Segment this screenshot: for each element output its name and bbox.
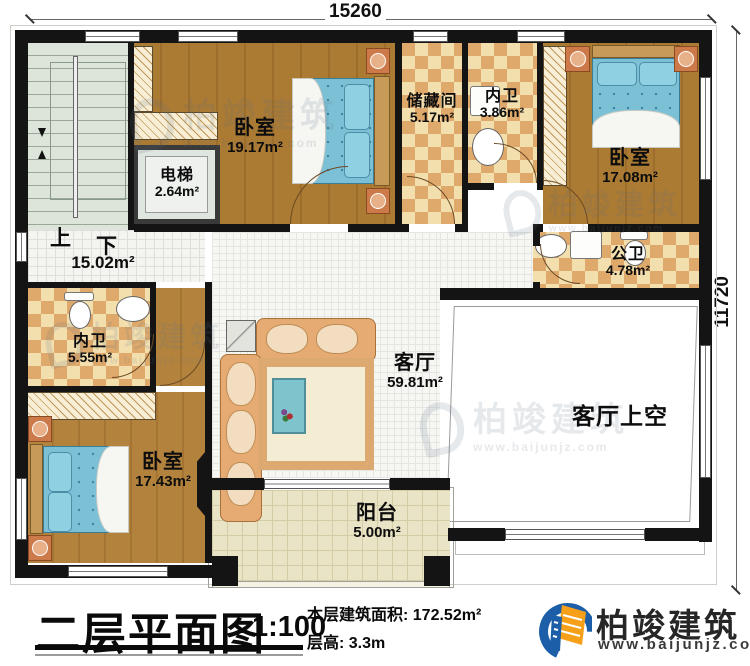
window: [85, 31, 140, 42]
label-bath-left: 内卫 5.55m²: [50, 333, 130, 365]
stair-direction-arrow: [38, 128, 46, 137]
bed-pillow: [639, 62, 677, 86]
label-bedroom-top-right: 卧室 17.08m²: [575, 148, 685, 186]
wall: [390, 478, 450, 490]
bed-headboard: [30, 444, 43, 534]
wall: [395, 43, 402, 232]
coffee-table: [272, 378, 306, 434]
nightstand: [28, 416, 52, 442]
title-underline: [35, 645, 303, 650]
bed-pillow: [48, 492, 72, 532]
label-elevator: 电梯 2.64m²: [136, 167, 218, 199]
label-living: 客厅 59.81m²: [360, 353, 470, 391]
stair-rail: [73, 56, 78, 218]
wall: [588, 224, 699, 232]
bed-pillow: [48, 452, 72, 492]
bed-headboard: [374, 76, 390, 186]
title-underline-thin: [35, 654, 303, 656]
toilet-tank: [620, 231, 648, 240]
nightstand: [565, 46, 590, 72]
sofa-cushion: [226, 410, 256, 454]
company-logo-icon: [536, 595, 592, 661]
window: [178, 31, 238, 42]
wall: [533, 224, 543, 232]
hallway-area-label: 15.02m²: [48, 254, 158, 272]
label-balcony: 阳台 5.00m²: [322, 503, 432, 541]
nightstand: [28, 535, 52, 561]
label-storage: 储藏间 5.17m²: [398, 93, 466, 125]
top-dimension-label: 15260: [325, 1, 386, 23]
label-bath-top: 内卫 3.86m²: [462, 88, 542, 120]
sofa-cushion: [226, 362, 256, 406]
label-bath-public: 公卫 4.78m²: [588, 246, 668, 278]
nightstand: [674, 46, 698, 72]
right-dimension-line: [736, 30, 737, 590]
window: [68, 566, 168, 577]
stair-direction-arrow: [38, 150, 46, 159]
wall: [134, 224, 290, 232]
window: [517, 31, 565, 42]
bed-sheet: [592, 110, 680, 148]
wall: [448, 528, 505, 541]
plan-title: 二层平面图: [36, 598, 266, 662]
wall: [128, 43, 134, 230]
floor-area-text: 本层建筑面积: 172.52m²: [307, 601, 481, 625]
nightstand: [366, 188, 390, 214]
bed-pillow: [597, 62, 637, 86]
side-table: [226, 320, 256, 352]
window: [16, 478, 27, 540]
window: [413, 31, 448, 42]
balcony-post: [212, 556, 238, 586]
toilet-bowl: [69, 301, 91, 329]
wall: [440, 288, 699, 300]
wardrobe: [131, 46, 153, 112]
table-flowers: [280, 408, 294, 422]
sofa-cushion: [316, 324, 358, 354]
balcony-post: [424, 556, 450, 586]
floor-height-text: 层高: 3.3m: [307, 629, 385, 653]
balcony-rail: [212, 581, 450, 588]
wall: [395, 224, 409, 232]
stairs-up-label: 上: [50, 222, 71, 252]
floor-plan-canvas: 15260 11720: [0, 0, 750, 666]
wall: [645, 528, 705, 541]
sofa-cushion: [266, 324, 308, 354]
label-bedroom-top-left: 卧室 19.17m²: [200, 118, 310, 156]
wall: [205, 282, 212, 563]
sink: [116, 296, 150, 322]
wall: [348, 224, 398, 232]
window: [16, 232, 27, 262]
window: [505, 529, 645, 540]
sliding-door: [264, 479, 390, 489]
label-bedroom-bottom-left: 卧室 17.43m²: [108, 452, 218, 490]
stair-opening-outline: [50, 62, 126, 200]
wall: [462, 43, 468, 232]
wall: [15, 386, 156, 392]
window: [700, 77, 711, 180]
bed-pillow: [344, 84, 370, 130]
label-living-void: 客厅上空: [555, 404, 685, 429]
eave-outline: [455, 540, 705, 555]
wall: [533, 232, 540, 246]
living-room-floor-strip: [440, 232, 533, 288]
wall: [462, 183, 494, 190]
window: [700, 345, 711, 478]
bed-headboard: [592, 45, 680, 58]
company-website: www.baijunjz.com: [598, 636, 750, 653]
toilet-tank: [64, 292, 94, 301]
wardrobe: [543, 46, 567, 186]
wall: [15, 282, 156, 288]
nightstand: [366, 48, 390, 74]
